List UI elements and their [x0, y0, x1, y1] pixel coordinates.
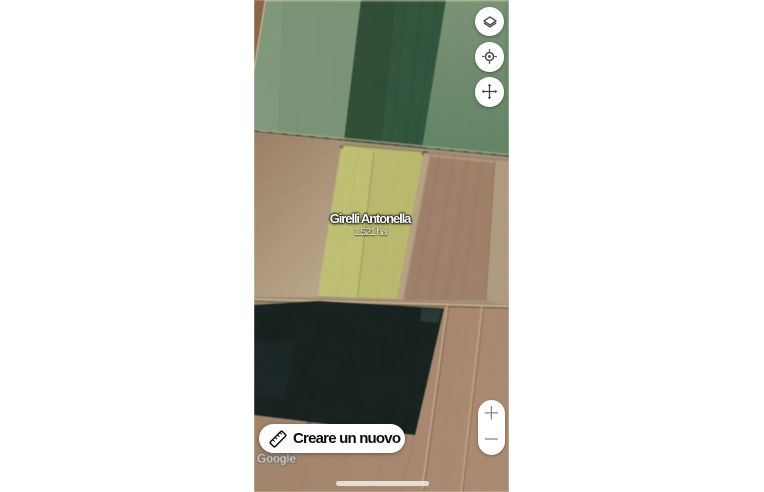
svg-text:Google: Google [257, 452, 296, 466]
